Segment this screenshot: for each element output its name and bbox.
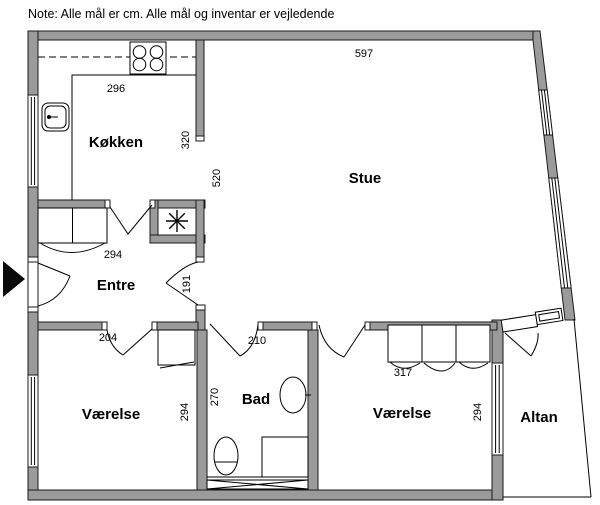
entrance-arrow-icon [3, 261, 25, 297]
dim-stue-width: 597 [355, 48, 373, 60]
cap-corridor-c-left [258, 322, 263, 330]
wall-shaft-right [196, 200, 204, 262]
window-kitchen [28, 95, 38, 187]
wall-bottom [28, 490, 503, 500]
kitchen-sink-icon [42, 103, 69, 131]
wall-kitchen-stue [196, 40, 204, 141]
door-entrance [38, 263, 70, 306]
floor-plan: Note: Alle mål er cm. Alle mål og invent… [0, 0, 600, 505]
dim-entre-width: 294 [104, 249, 122, 261]
wardrobe-vaerelse-right [388, 325, 490, 371]
entrance-opening [28, 257, 38, 312]
dim-stue-depth: 520 [211, 169, 223, 187]
dim-vaerelse-right-depth: 294 [472, 403, 484, 421]
closet-vaerelse-left [158, 330, 195, 368]
cap-corridor-a [102, 322, 107, 330]
dim-vaerelse-left-depth: 294 [179, 403, 191, 421]
dim-kokken-width: 296 [107, 83, 125, 95]
washbasin-icon [280, 377, 311, 413]
cap-kitchen-door-left [105, 200, 110, 208]
wall-top [28, 31, 535, 40]
room-label-vaerelse-left: Værelse [82, 406, 140, 423]
room-label-altan: Altan [520, 409, 558, 426]
stove-icon [130, 42, 166, 74]
wall-bath-right [308, 330, 318, 490]
wall-kitchen-entre [38, 200, 110, 208]
window-vaerelse-right [492, 363, 503, 455]
dim-kokken-depth: 320 [180, 131, 192, 149]
room-label-stue: Stue [349, 170, 382, 187]
note-text: Note: Alle mål er cm. Alle mål og invent… [28, 7, 334, 21]
dim-vaerelse-left-door: 204 [99, 332, 117, 344]
floor-plan-svg: Note: Alle mål er cm. Alle mål og invent… [0, 0, 600, 505]
window-stue-lower [549, 178, 571, 288]
cap-corridor-d [365, 322, 370, 330]
door-vaerelse-right [319, 325, 365, 357]
balcony-door-window [501, 308, 564, 356]
cap-entre-stub [196, 305, 205, 310]
room-label-vaerelse-right: Værelse [373, 405, 431, 422]
room-label-entre: Entre [97, 277, 135, 294]
balcony-edge-right [574, 319, 591, 497]
wall-corridor-a [38, 322, 107, 330]
cap-shaft-bottom [196, 257, 204, 262]
window-vaerelse-left [28, 375, 38, 467]
toilet-icon [214, 437, 238, 475]
ventilation-star-icon [166, 210, 188, 232]
dim-bad-width: 270 [209, 388, 221, 406]
cap-corridor-c-right [312, 322, 317, 330]
radiator-icon [207, 480, 308, 489]
wall-corridor-c [258, 322, 317, 330]
entre-wardrobe [38, 208, 107, 253]
dim-entre-passage: 191 [181, 275, 193, 293]
room-label-kokken: Køkken [89, 134, 143, 151]
wall-corridor-b [152, 322, 198, 330]
shower-icon [262, 437, 308, 477]
wall-bath-left [197, 330, 207, 490]
door-kitchen [110, 205, 152, 234]
room-label-bad: Bad [242, 391, 270, 408]
cap-kitchen-wall [196, 136, 204, 141]
dim-bad-door: 210 [248, 335, 266, 347]
cap-corridor-b [152, 322, 157, 330]
dim-wardrobe-width: 317 [394, 367, 412, 379]
